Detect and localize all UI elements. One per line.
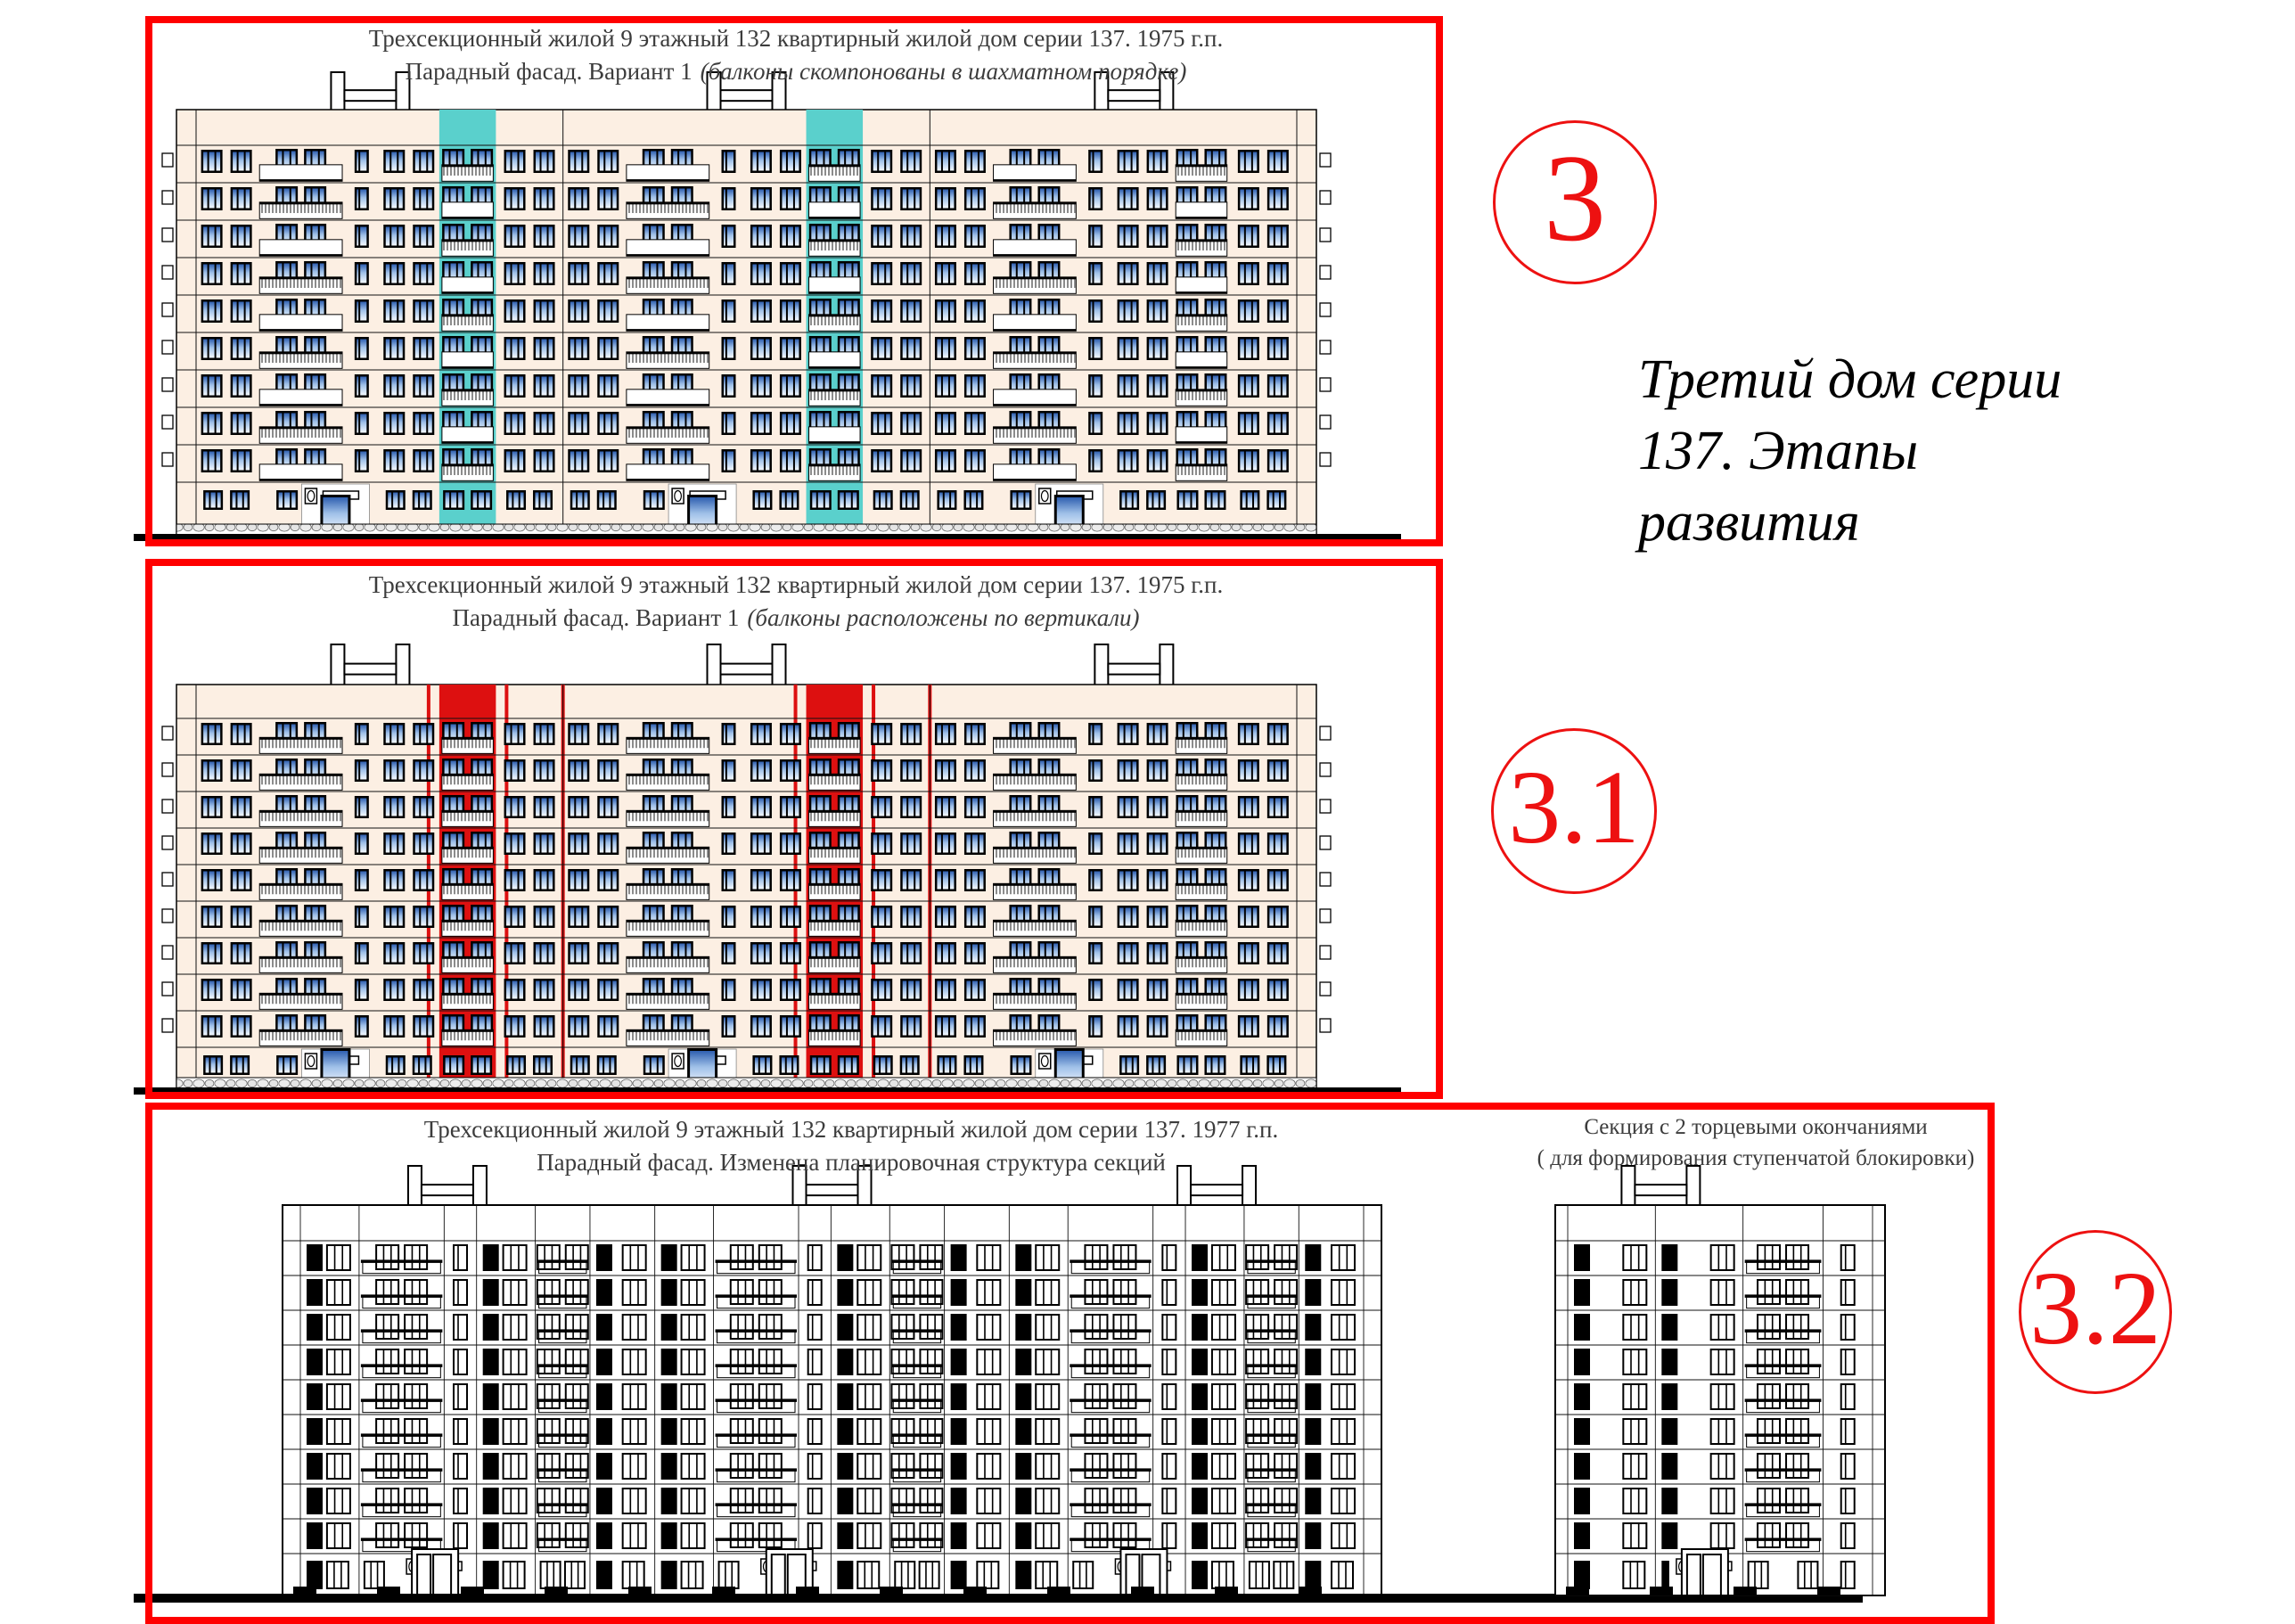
side-note-line3: развития [1638,487,2209,558]
elevation-drawings [0,0,2295,1624]
side-note: Третий дом серии 137. Этапы развития [1638,344,2209,558]
side-note-line2: 137. Этапы [1638,415,2209,487]
panel3-right-caption-line1: Секция с 2 торцевыми окончаниями [1497,1115,2014,1140]
panel3-subtitle: Парадный фасад. Изменена планировочная с… [294,1149,1408,1177]
panel2-subtitle-normal: Парадный фасад. Вариант 1 [452,604,739,631]
elevation-1977-end-section [1555,1166,1885,1595]
panel2-subtitle: Парадный фасад. Вариант 1(балконы распол… [270,604,1322,632]
stage-badge-3-2-label: 3.2 [2029,1248,2161,1369]
side-note-line1: Третий дом серии [1638,344,2209,415]
stage-badge-3-2: 3.2 [2019,1230,2172,1394]
panel2-subtitle-italic: (балконы расположены по вертикали) [747,604,1139,631]
panel3-right-caption-line2: ( для формирования ступенчатой блокировк… [1497,1146,2014,1171]
stage-badge-3-1-label: 3.1 [1508,747,1640,868]
slide: Трехсекционный жилой 9 этажный 132 кварт… [0,0,2295,1624]
panel1-title: Трехсекционный жилой 9 этажный 132 кварт… [270,25,1322,53]
elevation-1975-vertical [134,644,1401,1095]
elevation-1975-checkerboard [134,72,1401,541]
panel3-title: Трехсекционный жилой 9 этажный 132 кварт… [294,1116,1408,1144]
panel2-title: Трехсекционный жилой 9 этажный 132 кварт… [270,571,1322,599]
stage-badge-3-label: 3 [1544,127,1606,270]
stage-badge-3-1: 3.1 [1491,728,1657,894]
panel1-subtitle: Парадный фасад. Вариант 1(балконы скомпо… [270,58,1322,86]
panel1-subtitle-normal: Парадный фасад. Вариант 1 [406,58,693,85]
stage-badge-3: 3 [1493,120,1657,284]
panel1-subtitle-italic: (балконы скомпонованы в шахматном порядк… [701,58,1187,85]
